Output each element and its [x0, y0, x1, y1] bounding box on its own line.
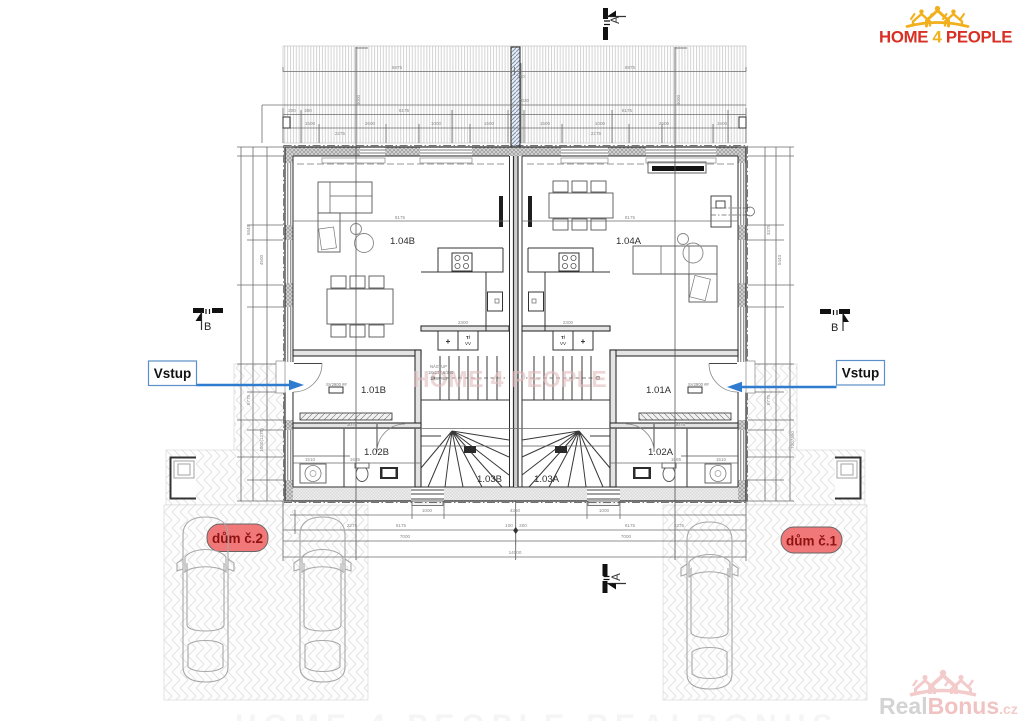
- svg-text:RealBonus.cz: RealBonus.cz: [879, 693, 1018, 719]
- svg-text:4350: 4350: [510, 508, 521, 513]
- svg-text:16,69 m2: 16,69 m2: [430, 376, 448, 381]
- svg-text:1685: 1685: [671, 457, 682, 462]
- svg-text:5775: 5775: [246, 394, 251, 405]
- svg-text:1.04B: 1.04B: [390, 236, 415, 247]
- svg-text:1000: 1000: [431, 121, 442, 126]
- svg-text:3375: 3375: [766, 224, 771, 235]
- svg-text:1510: 1510: [716, 457, 727, 462]
- svg-text:3075: 3075: [347, 422, 358, 427]
- svg-text:7000: 7000: [400, 534, 411, 539]
- svg-text:2275: 2275: [674, 523, 685, 528]
- svg-text:1.04A: 1.04A: [616, 236, 642, 247]
- svg-text:7007450: 7007450: [790, 431, 795, 449]
- svg-text:1685: 1685: [350, 457, 361, 462]
- svg-text:1500: 1500: [540, 121, 551, 126]
- svg-text:1000(1275): 1000(1275): [259, 428, 264, 452]
- svg-text:1500: 1500: [484, 121, 495, 126]
- svg-text:B: B: [204, 321, 211, 333]
- svg-text:2300: 2300: [458, 320, 469, 325]
- svg-text:6975: 6975: [392, 65, 403, 70]
- svg-text:3000: 3000: [676, 94, 681, 105]
- svg-text:+: +: [446, 337, 451, 346]
- svg-text:200: 200: [288, 108, 296, 113]
- svg-text:6175: 6175: [622, 108, 633, 113]
- svg-text:dům č.2: dům č.2: [212, 531, 263, 546]
- svg-text:1510: 1510: [305, 457, 316, 462]
- svg-text:A: A: [610, 16, 622, 24]
- svg-text:1000: 1000: [599, 508, 610, 513]
- svg-text:3075: 3075: [675, 422, 686, 427]
- svg-text:2275: 2275: [335, 131, 346, 136]
- svg-text:SV2900 ##: SV2900 ##: [688, 382, 709, 387]
- svg-text:2300: 2300: [563, 320, 574, 325]
- svg-text:2600: 2600: [659, 121, 670, 126]
- svg-text:1500: 1500: [717, 121, 728, 126]
- svg-text:300: 300: [304, 108, 312, 113]
- svg-text:100: 100: [505, 523, 513, 528]
- svg-text:VV: VV: [560, 341, 566, 346]
- svg-text:Vstup: Vstup: [842, 366, 880, 381]
- svg-text:B: B: [831, 322, 838, 334]
- svg-text:6975: 6975: [625, 65, 636, 70]
- svg-text:8175: 8175: [625, 215, 636, 220]
- svg-text:1000: 1000: [422, 508, 433, 513]
- svg-text:8175: 8175: [395, 215, 406, 220]
- svg-text:Vstup: Vstup: [154, 366, 192, 381]
- svg-text:1000: 1000: [595, 121, 606, 126]
- svg-text:1.01B: 1.01B: [361, 385, 386, 396]
- svg-text:NÁSTUP: NÁSTUP: [430, 364, 447, 369]
- svg-text:6175: 6175: [399, 108, 410, 113]
- svg-text:HOME 4 PEOPLE REALBONUS: HOME 4 PEOPLE REALBONUS: [235, 709, 839, 721]
- svg-text:300: 300: [519, 523, 527, 528]
- svg-text:1500: 1500: [305, 121, 316, 126]
- svg-text:A: A: [611, 573, 623, 581]
- svg-text:1.02B: 1.02B: [364, 447, 389, 458]
- svg-text:4500: 4500: [259, 254, 264, 265]
- svg-text:1.01A: 1.01A: [646, 385, 672, 396]
- svg-text:14000: 14000: [509, 550, 522, 555]
- svg-text:7000: 7000: [621, 534, 632, 539]
- svg-text:2275: 2275: [591, 131, 602, 136]
- svg-text:4030: 4030: [519, 98, 530, 103]
- svg-text:6175: 6175: [396, 523, 407, 528]
- svg-text:1.03A: 1.03A: [534, 474, 560, 485]
- svg-text:HOME 4 PEOPLE: HOME 4 PEOPLE: [879, 28, 1012, 47]
- svg-text:+: +: [581, 337, 586, 346]
- svg-text:5845: 5845: [246, 224, 251, 235]
- svg-text:1.02A: 1.02A: [648, 447, 674, 458]
- svg-text:5443: 5443: [777, 254, 782, 265]
- svg-text:250: 250: [517, 74, 525, 79]
- svg-text:2275: 2275: [347, 523, 358, 528]
- svg-text:VV: VV: [465, 341, 471, 346]
- svg-text:2600: 2600: [365, 121, 376, 126]
- svg-text:SV2900 ##: SV2900 ##: [326, 382, 347, 387]
- svg-text:3000: 3000: [356, 94, 361, 105]
- svg-text:dům č.1: dům č.1: [786, 534, 838, 549]
- svg-text:6175: 6175: [625, 523, 636, 528]
- svg-text:1.03B: 1.03B: [477, 474, 502, 485]
- svg-text:18x177,8/250: 18x177,8/250: [428, 370, 454, 375]
- svg-text:5775: 5775: [766, 394, 771, 405]
